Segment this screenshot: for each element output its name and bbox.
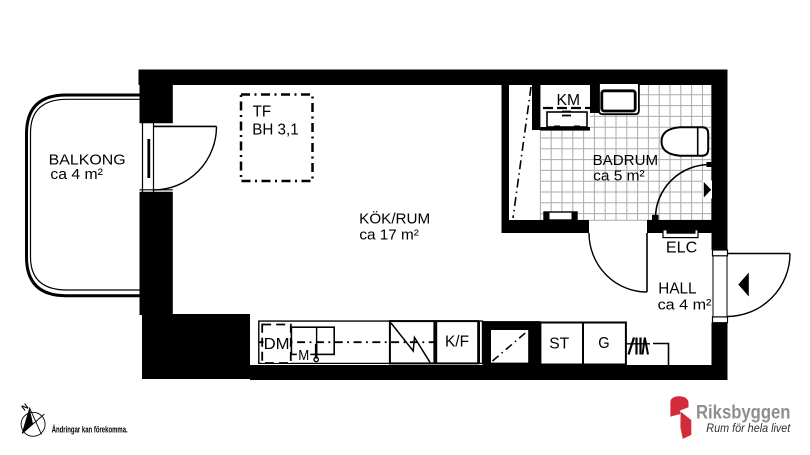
svg-text:ca 4 m²: ca 4 m² <box>50 166 103 183</box>
svg-text:HALL: HALL <box>658 280 697 297</box>
svg-text:ca 5 m²: ca 5 m² <box>593 168 645 185</box>
svg-text:DM: DM <box>264 336 290 353</box>
svg-text:KÖK/RUM: KÖK/RUM <box>359 210 430 228</box>
svg-text:KM: KM <box>557 92 581 109</box>
svg-text:Ändringar kan förekomma.: Ändringar kan förekomma. <box>52 424 128 434</box>
svg-text:M: M <box>298 348 309 364</box>
svg-text:TF: TF <box>253 103 272 120</box>
svg-text:ST: ST <box>549 335 569 352</box>
svg-text:Rum för hela livet: Rum för hela livet <box>706 421 791 435</box>
svg-text:K/F: K/F <box>445 334 469 351</box>
svg-text:BH 3,1: BH 3,1 <box>252 122 299 139</box>
svg-text:ca 4 m²: ca 4 m² <box>658 296 712 313</box>
svg-text:ELC: ELC <box>666 240 697 257</box>
svg-text:BADRUM: BADRUM <box>593 152 659 169</box>
svg-text:G: G <box>598 335 609 352</box>
svg-text:ca 17 m²: ca 17 m² <box>359 228 419 244</box>
